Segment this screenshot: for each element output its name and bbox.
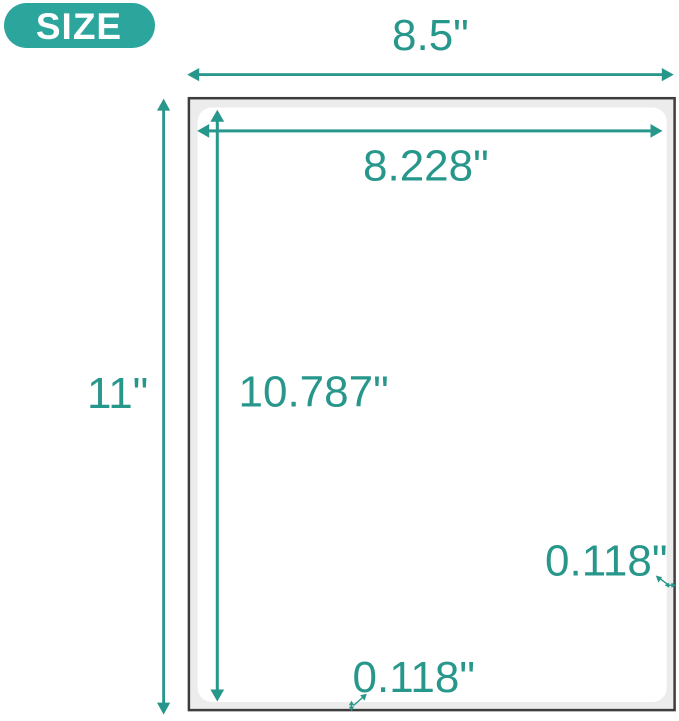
svg-text:0.118": 0.118" <box>353 653 475 702</box>
svg-text:0.118": 0.118" <box>545 537 667 586</box>
svg-text:SIZE: SIZE <box>36 6 122 47</box>
svg-text:8.5": 8.5" <box>392 11 469 60</box>
svg-text:10.787": 10.787" <box>239 368 389 417</box>
svg-text:11": 11" <box>87 369 148 418</box>
svg-text:8.228": 8.228" <box>363 142 489 191</box>
